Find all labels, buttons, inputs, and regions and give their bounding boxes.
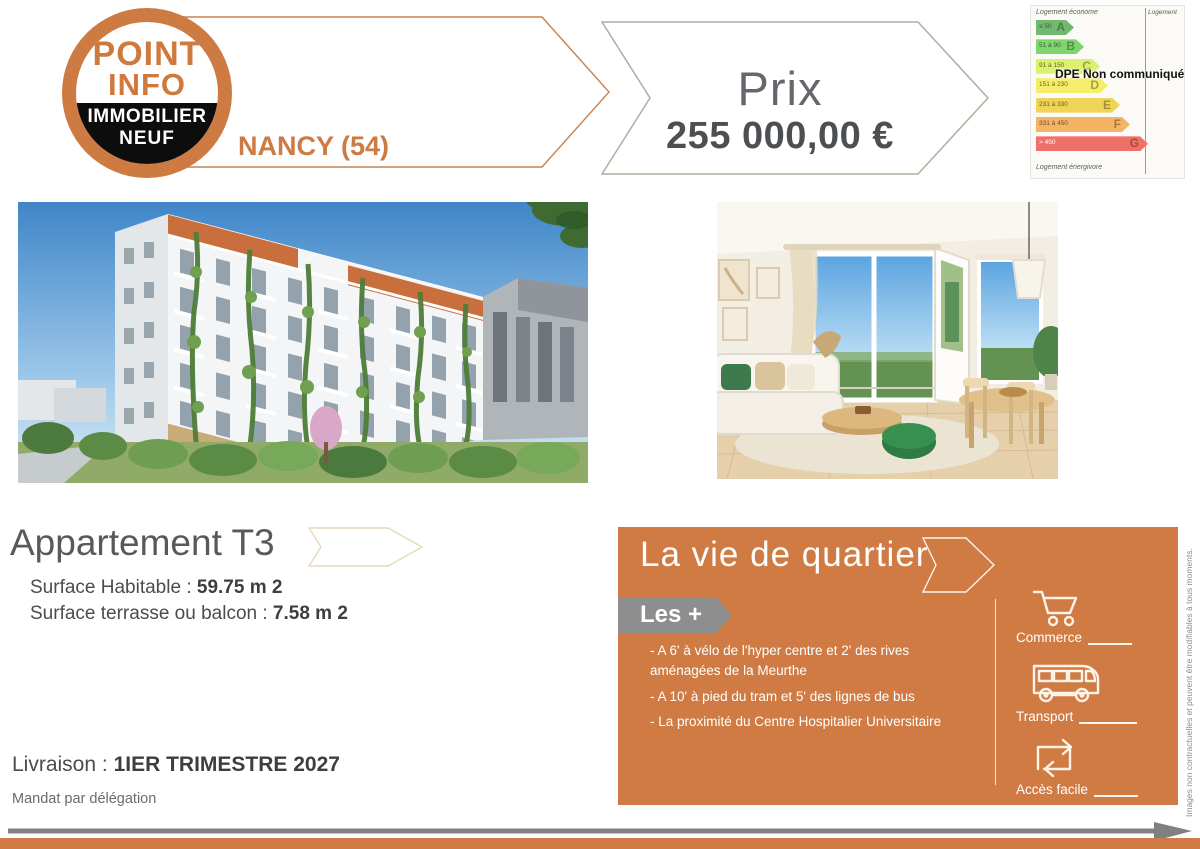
amenity-transport: Transport [1016, 656, 1176, 726]
apartment-title: Appartement T3 [10, 522, 275, 564]
quartier-box: La vie de quartier Les + - A 6' à vélo d… [618, 527, 1178, 805]
interior-illustration [717, 202, 1058, 479]
dpe-bar-f: 331 à 450 F [1036, 117, 1130, 132]
price-label: Prix [610, 64, 950, 113]
amenities-list: Commerce Transport Ac [1016, 587, 1176, 808]
blank-line [1079, 722, 1137, 724]
delivery-label: Livraison : [12, 753, 108, 776]
dpe-range-a: ≤ 50 [1039, 24, 1052, 31]
dpe-range-b: 51 à 90 [1039, 43, 1061, 50]
image-disclaimer: Images non contractuelles et peuvent êtr… [1184, 545, 1194, 817]
quartier-bullet: - A 10' à pied du tram et 5' des lignes … [650, 687, 968, 707]
logo-text-info: INFO [76, 67, 218, 103]
interior-photo [717, 202, 1058, 479]
quartier-bullet: - A 6' à vélo de l'hyper centre et 2' de… [650, 641, 968, 682]
dpe-label-energivore: Logement énergivore [1036, 164, 1102, 171]
quartier-divider [995, 599, 996, 785]
apartment-chevron-outline [308, 527, 424, 567]
price-block: Prix 255 000,00 € [610, 64, 950, 158]
price-value: 255 000,00 € [610, 115, 950, 158]
dpe-bar-e: 231 à 330 E [1036, 98, 1120, 113]
dpe-range-f: 331 à 450 [1039, 121, 1068, 128]
dpe-not-communicated: DPE Non communiqué [1055, 67, 1184, 81]
dpe-label-right: Logement [1148, 9, 1177, 16]
amenity-commerce: Commerce [1016, 587, 1176, 647]
amenity-label-transport: Transport [1016, 709, 1073, 724]
surface-terrace-value: 7.58 m 2 [273, 603, 348, 624]
dpe-range-g: > 450 [1039, 140, 1055, 147]
delivery-value: 1IER TRIMESTRE 2027 [114, 753, 340, 776]
bus-icon [1030, 656, 1104, 708]
surface-terrace-label: Surface terrasse ou balcon : [30, 603, 268, 624]
dpe-letter-f: F [1114, 118, 1121, 130]
dpe-energy-chart: Logement économe Logement ≤ 50 A 51 à 90… [1030, 5, 1185, 179]
dpe-bar-a: ≤ 50 A [1036, 20, 1074, 35]
surface-habitable-value: 59.75 m 2 [197, 577, 283, 598]
quartier-title: La vie de quartier [640, 535, 928, 575]
surface-terrace-row: Surface terrasse ou balcon : 7.58 m 2 [30, 601, 348, 627]
point-info-logo: POINT INFO IMMOBILIER NEUF [62, 8, 232, 178]
surface-details: Surface Habitable : 59.75 m 2 Surface te… [30, 575, 348, 626]
quartier-chevron-outline [922, 537, 996, 593]
surface-habitable-row: Surface Habitable : 59.75 m 2 [30, 575, 348, 601]
logo-inner-circle: POINT INFO IMMOBILIER NEUF [76, 22, 218, 164]
easy-access-icon [1030, 735, 1090, 781]
shopping-cart-icon [1030, 587, 1086, 629]
quartier-bullet: - La proximité du Centre Hospitalier Uni… [650, 712, 968, 732]
dpe-label-econome: Logement économe [1036, 9, 1098, 16]
dpe-letter-g: G [1130, 137, 1139, 149]
delivery-row: Livraison : 1IER TRIMESTRE 2027 [12, 753, 340, 777]
city-label: NANCY (54) [238, 131, 389, 162]
mandate-note: Mandat par délégation [12, 791, 156, 807]
dpe-letter-e: E [1103, 99, 1111, 111]
blank-line [1088, 643, 1132, 645]
dpe-range-d: 151 à 230 [1039, 82, 1068, 89]
dpe-bar-b: 51 à 90 B [1036, 39, 1084, 54]
dpe-range-e: 231 à 330 [1039, 102, 1068, 109]
bottom-orange-bar [0, 838, 1200, 849]
building-photo [18, 202, 588, 483]
logo-text-immobilier: IMMOBILIER [76, 106, 218, 128]
surface-habitable-label: Surface Habitable : [30, 577, 192, 598]
amenity-label-access: Accès facile [1016, 782, 1088, 797]
flyer-page: POINT INFO IMMOBILIER NEUF NANCY (54) Pr… [0, 0, 1200, 849]
amenity-access: Accès facile [1016, 735, 1176, 799]
dpe-letter-b: B [1066, 40, 1075, 52]
les-plus-badge: Les + [618, 597, 732, 633]
dpe-letter-a: A [1056, 21, 1065, 33]
dpe-bar-g: > 450 G [1036, 136, 1148, 151]
quartier-bullets: - A 6' à vélo de l'hyper centre et 2' de… [650, 641, 968, 737]
dpe-bars: ≤ 50 A 51 à 90 B 91 à 150 C 151 à 230 D … [1036, 20, 1148, 156]
building-illustration [18, 202, 588, 483]
amenity-label-commerce: Commerce [1016, 630, 1082, 645]
logo-text-neuf: NEUF [76, 128, 218, 150]
blank-line [1094, 795, 1138, 797]
